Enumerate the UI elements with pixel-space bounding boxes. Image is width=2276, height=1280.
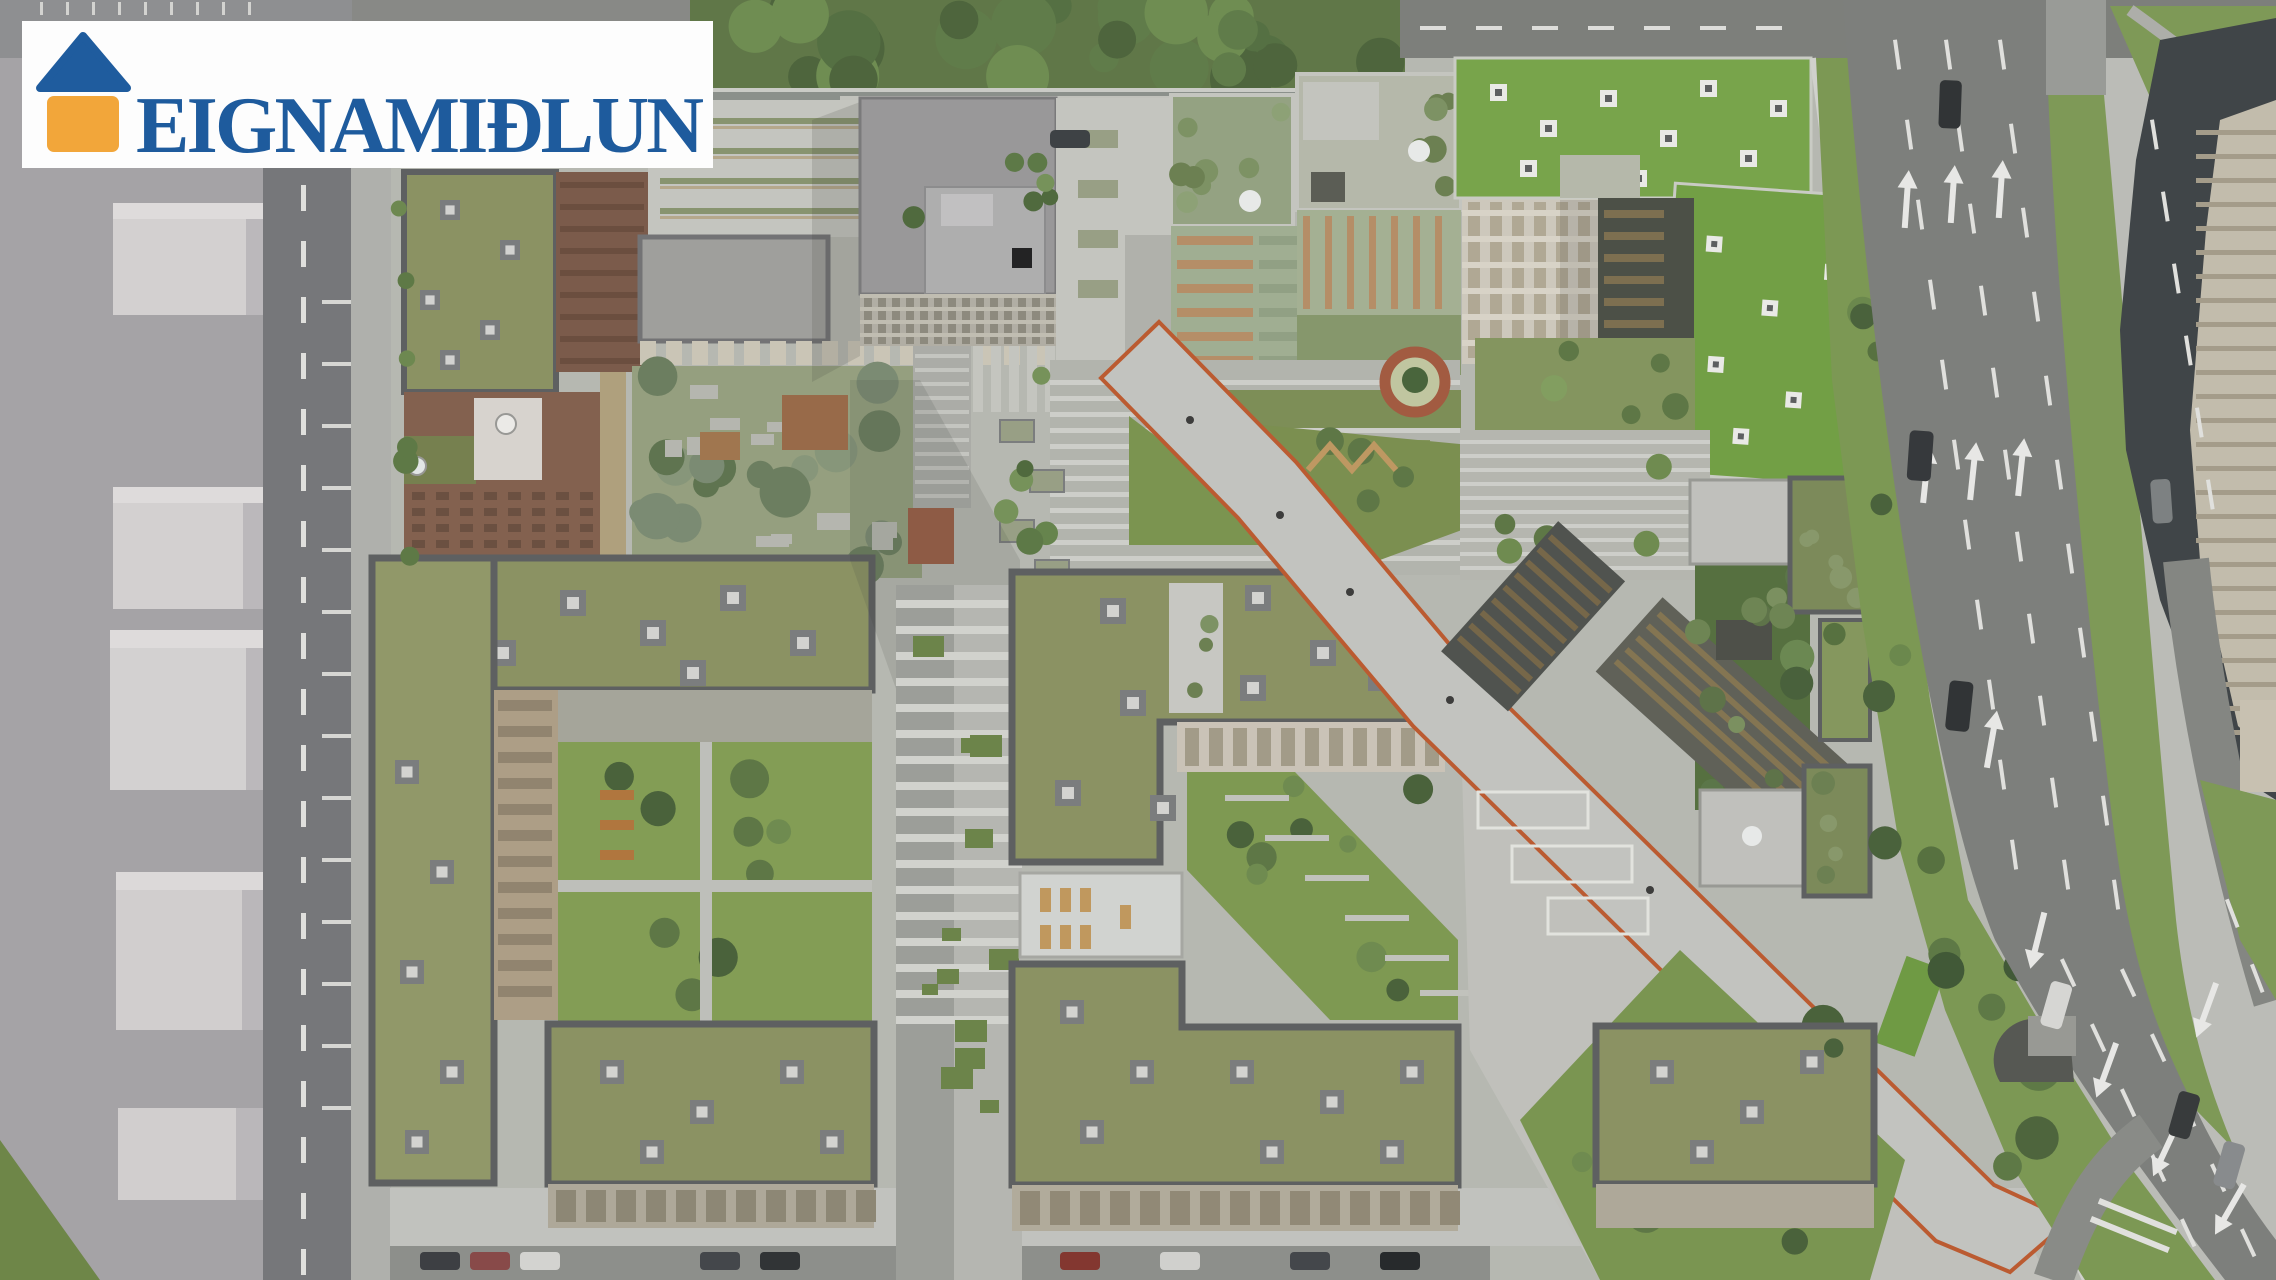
svg-text:EIGNAMIÐLUN: EIGNAMIÐLUN	[136, 82, 704, 170]
